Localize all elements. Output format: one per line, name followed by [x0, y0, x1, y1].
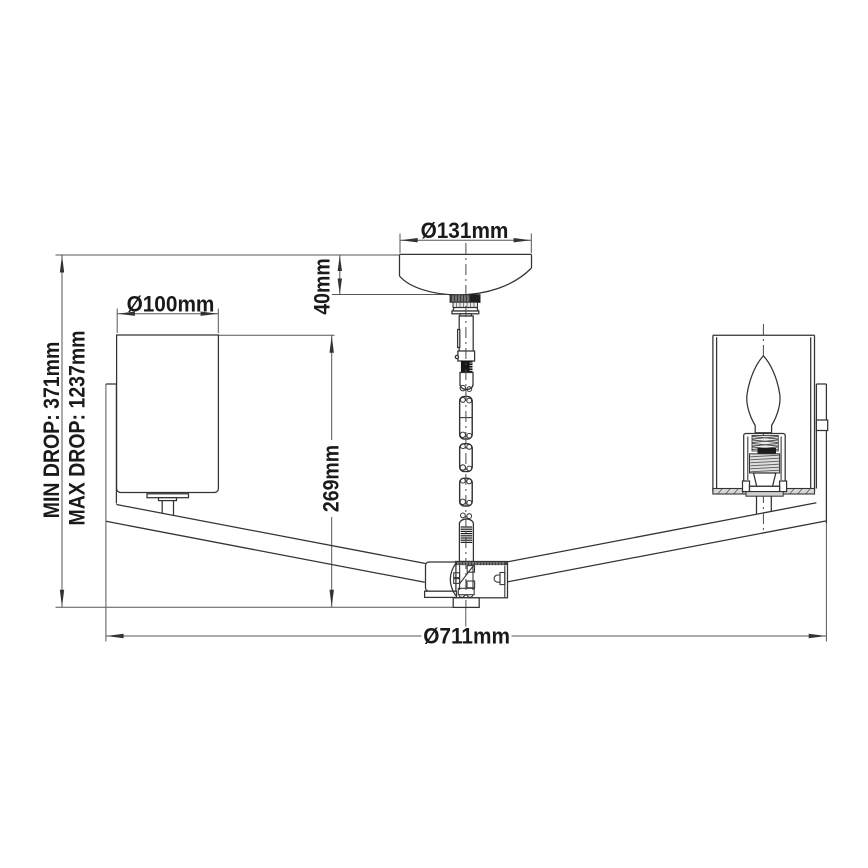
- svg-text:Ø100mm: Ø100mm: [127, 291, 215, 317]
- svg-text:40mm: 40mm: [310, 258, 335, 314]
- svg-text:MAX DROP: 1237mm: MAX DROP: 1237mm: [65, 330, 90, 525]
- svg-text:269mm: 269mm: [319, 445, 344, 512]
- svg-text:Ø711mm: Ø711mm: [423, 623, 510, 649]
- svg-text:Ø131mm: Ø131mm: [421, 217, 509, 243]
- svg-text:MIN DROP: 371mm: MIN DROP: 371mm: [40, 342, 65, 519]
